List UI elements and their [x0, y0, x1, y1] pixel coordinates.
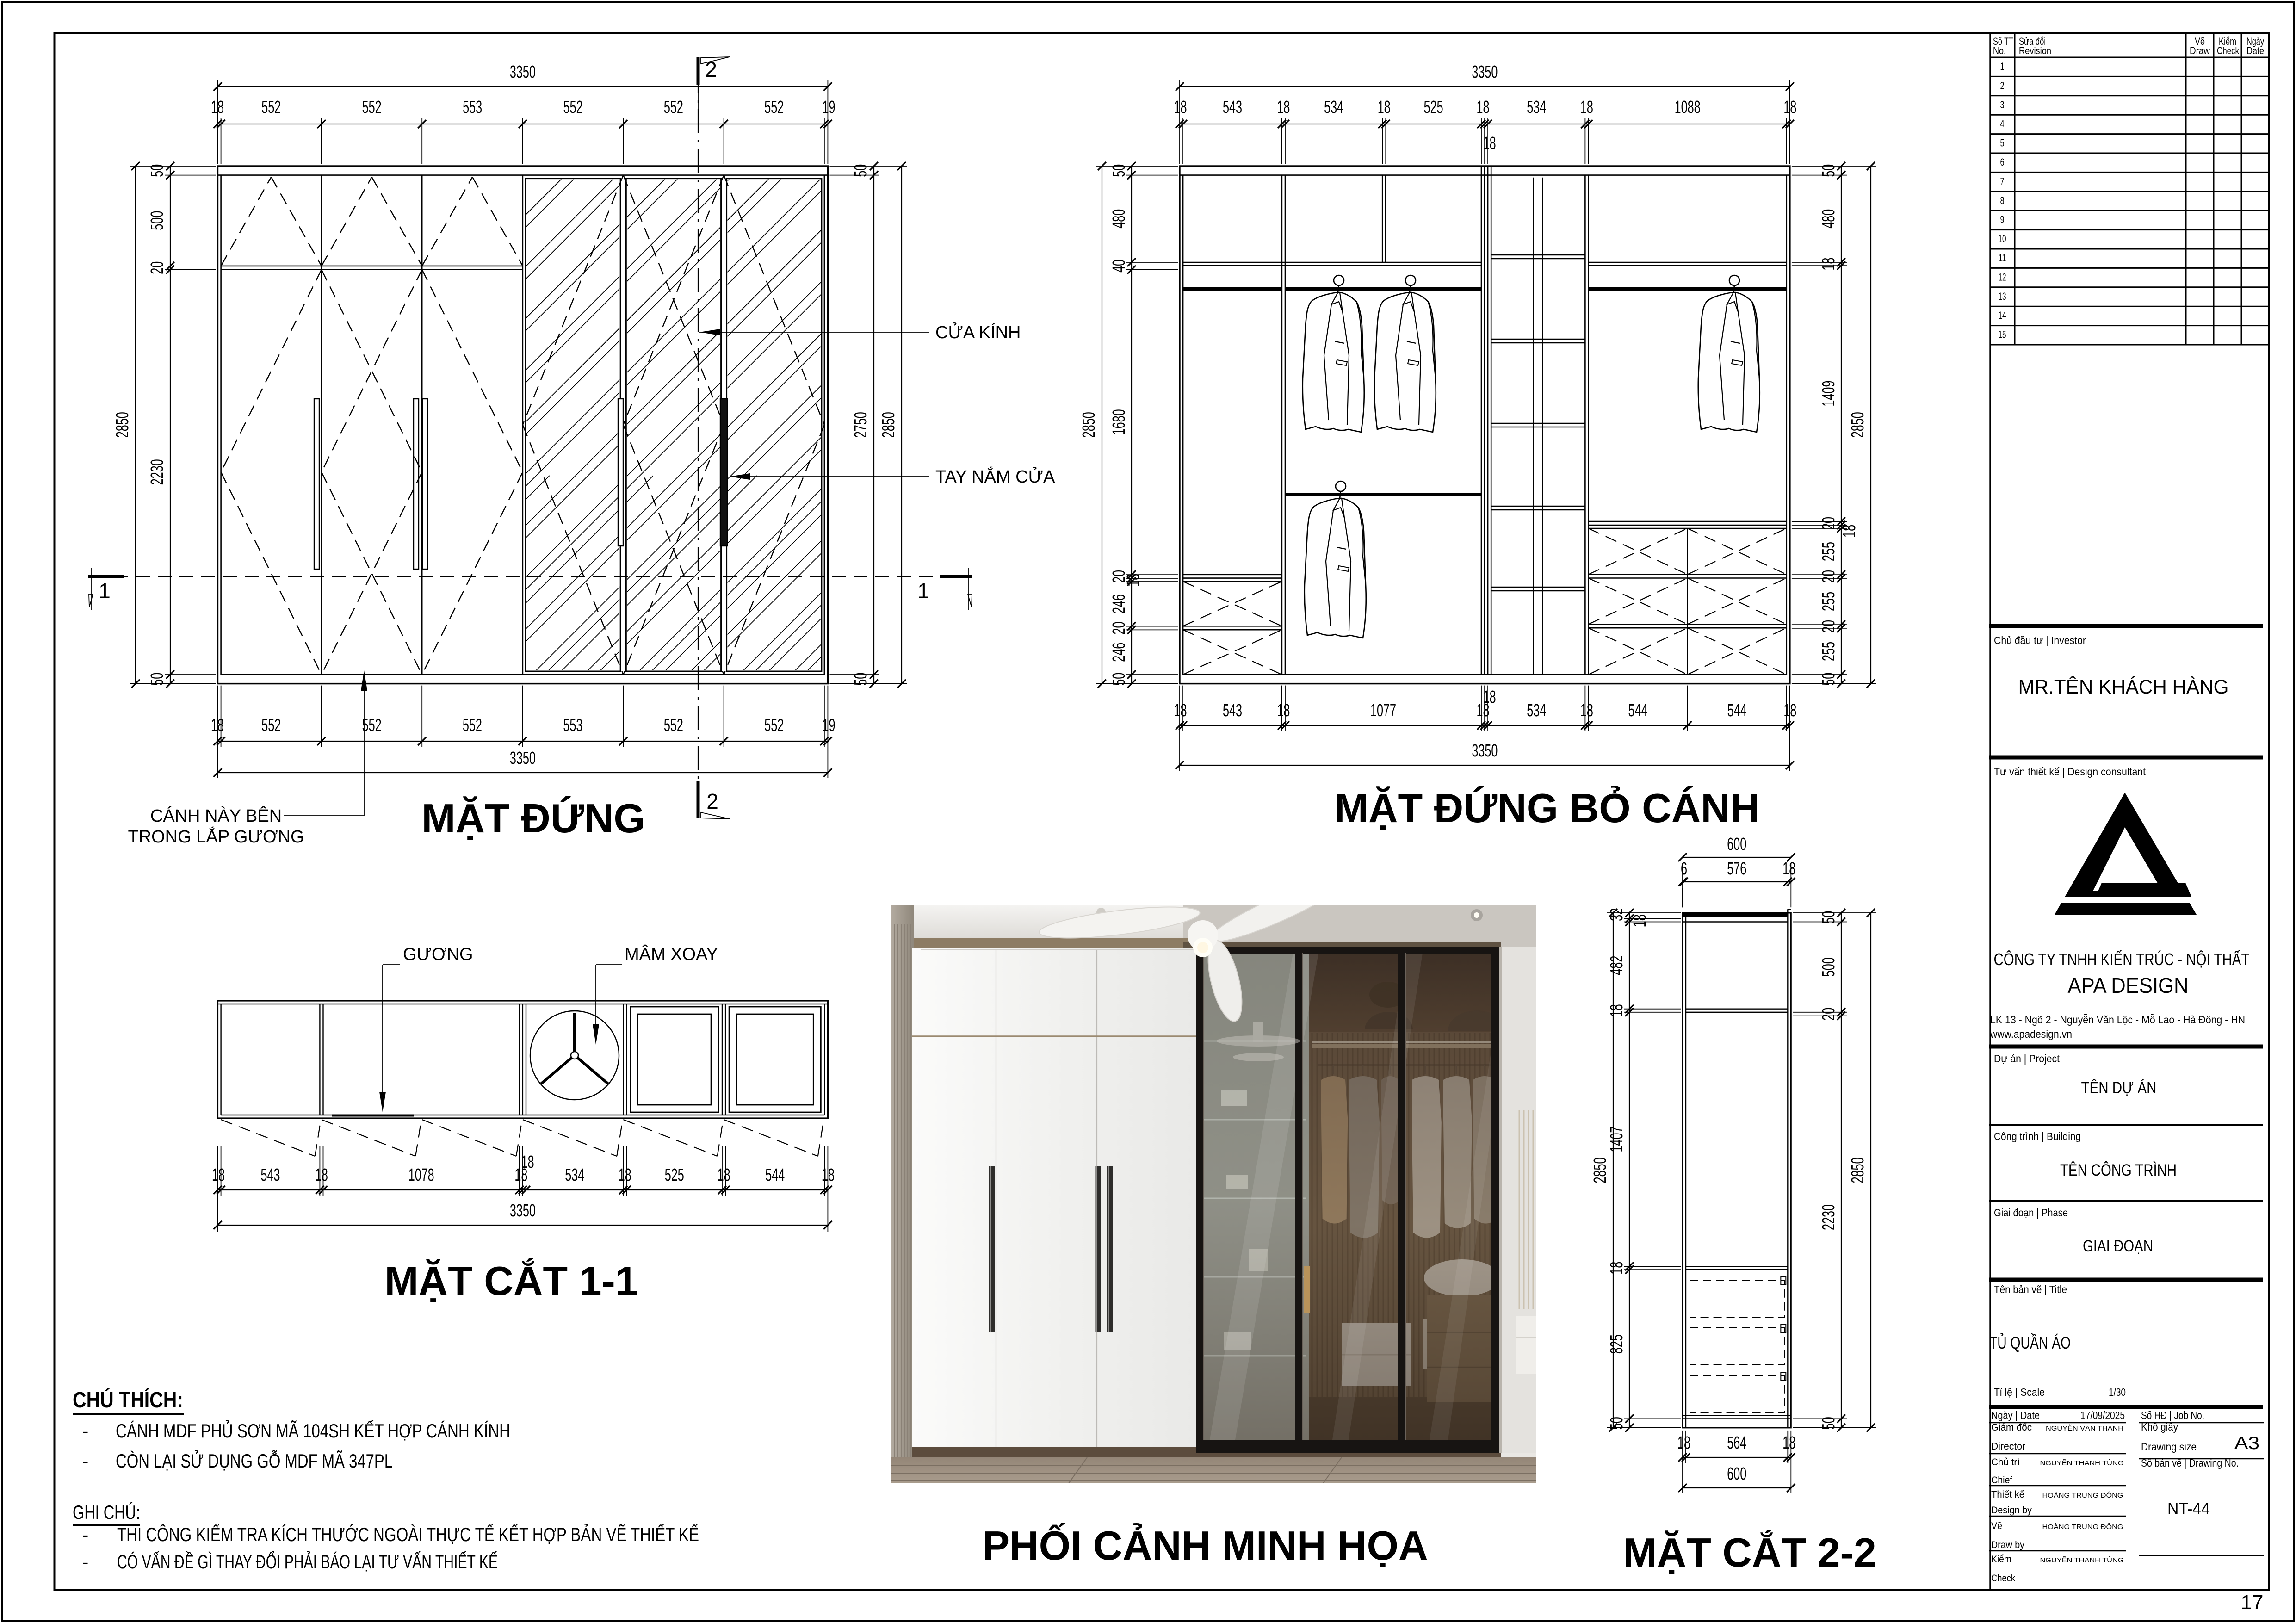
svg-text:552: 552: [261, 716, 281, 735]
svg-text:246: 246: [1109, 643, 1129, 662]
svg-text:18: 18: [1782, 1433, 1795, 1453]
svg-text:18: 18: [211, 98, 224, 117]
svg-text:1: 1: [2000, 61, 2005, 72]
svg-text:CÒN LẠI SỬ DỤNG GỖ MDF MÃ 347P: CÒN LẠI SỬ DỤNG GỖ MDF MÃ 347PL: [116, 1450, 393, 1472]
svg-text:2: 2: [706, 789, 718, 813]
svg-text:255: 255: [1819, 592, 1838, 611]
svg-text:500: 500: [148, 211, 167, 230]
svg-text:Date: Date: [2246, 45, 2264, 56]
svg-text:2750: 2750: [851, 412, 871, 438]
svg-text:6: 6: [1681, 859, 1687, 879]
svg-text:576: 576: [1727, 859, 1746, 879]
svg-text:50: 50: [148, 164, 167, 177]
svg-text:18: 18: [1819, 258, 1838, 271]
svg-text:MẶT CẮT 1-1: MẶT CẮT 1-1: [384, 1258, 638, 1304]
svg-text:1078: 1078: [408, 1165, 434, 1185]
svg-text:18: 18: [1124, 574, 1143, 587]
svg-text:3350: 3350: [510, 749, 536, 768]
svg-text:50: 50: [1109, 673, 1129, 686]
svg-text:18: 18: [1378, 98, 1391, 117]
svg-text:HOÀNG TRUNG ĐÔNG: HOÀNG TRUNG ĐÔNG: [2042, 1492, 2123, 1499]
svg-text:18: 18: [1783, 701, 1796, 720]
svg-text:2850: 2850: [1848, 412, 1868, 438]
svg-text:CỬA KÍNH: CỬA KÍNH: [935, 322, 1021, 342]
svg-text:2850: 2850: [1079, 412, 1099, 438]
svg-text:Design by: Design by: [1991, 1505, 2032, 1516]
svg-text:CÔNG TY TNHH KIẾN TRÚC - NỘI T: CÔNG TY TNHH KIẾN TRÚC - NỘI THẤT: [1994, 950, 2250, 969]
svg-text:2: 2: [2000, 80, 2005, 91]
svg-text:A3: A3: [2234, 1433, 2259, 1453]
svg-text:18: 18: [1483, 688, 1496, 707]
svg-text:18: 18: [315, 1165, 328, 1185]
svg-text:18: 18: [1607, 1004, 1627, 1017]
svg-text:543: 543: [1223, 98, 1242, 117]
svg-text:CHÚ THÍCH:: CHÚ THÍCH:: [73, 1387, 183, 1412]
svg-text:552: 552: [362, 98, 382, 117]
svg-text:2230: 2230: [1819, 1204, 1838, 1230]
svg-text:8: 8: [2000, 195, 2005, 206]
svg-text:20: 20: [1109, 622, 1129, 635]
svg-text:18: 18: [1174, 98, 1187, 117]
svg-text:PHỐI CẢNH MINH HỌA: PHỐI CẢNH MINH HỌA: [982, 1523, 1428, 1568]
svg-text:534: 534: [1324, 98, 1343, 117]
svg-text:Ngày | Date: Ngày | Date: [1991, 1409, 2040, 1421]
svg-text:www.apadesign.vn: www.apadesign.vn: [1990, 1028, 2072, 1040]
svg-text:482: 482: [1607, 956, 1627, 975]
svg-text:1: 1: [917, 579, 929, 603]
svg-text:553: 553: [463, 98, 482, 117]
svg-text:825: 825: [1607, 1334, 1627, 1354]
svg-text:534: 534: [565, 1165, 584, 1185]
svg-text:2850: 2850: [879, 412, 898, 438]
svg-text:17/09/2025: 17/09/2025: [2080, 1409, 2125, 1421]
svg-text:50: 50: [851, 164, 871, 177]
svg-text:600: 600: [1727, 1464, 1746, 1484]
svg-text:18: 18: [1477, 98, 1490, 117]
svg-text:9: 9: [2000, 214, 2005, 225]
svg-text:50: 50: [1819, 1417, 1838, 1430]
svg-text:552: 552: [261, 98, 281, 117]
svg-text:GIAI ĐOẠN: GIAI ĐOẠN: [2083, 1237, 2153, 1255]
svg-text:4: 4: [2000, 118, 2005, 130]
svg-text:Revision: Revision: [2019, 45, 2051, 56]
svg-text:18: 18: [211, 716, 224, 735]
svg-text:552: 552: [764, 716, 784, 735]
svg-text:50: 50: [851, 673, 871, 686]
svg-text:-: -: [82, 1451, 88, 1472]
svg-text:Giai đoạn | Phase: Giai đoạn | Phase: [1994, 1207, 2068, 1219]
svg-text:255: 255: [1819, 542, 1838, 561]
svg-text:534: 534: [1527, 701, 1546, 720]
svg-text:1: 1: [99, 579, 111, 603]
svg-text:18: 18: [1607, 1262, 1627, 1275]
svg-text:Giám đốc: Giám đốc: [1991, 1422, 2032, 1433]
svg-text:552: 552: [563, 98, 583, 117]
svg-text:543: 543: [1223, 701, 1242, 720]
svg-text:Dự án | Project: Dự án | Project: [1994, 1053, 2060, 1065]
svg-text:Kiểm: Kiểm: [1991, 1554, 2011, 1565]
svg-text:544: 544: [765, 1165, 785, 1185]
svg-text:Check: Check: [1991, 1573, 2015, 1584]
svg-text:2850: 2850: [1848, 1158, 1868, 1183]
svg-text:20: 20: [1819, 517, 1838, 530]
svg-text:GHI CHÚ:: GHI CHÚ:: [73, 1501, 140, 1523]
svg-text:18: 18: [1783, 98, 1796, 117]
svg-text:552: 552: [664, 716, 683, 735]
svg-text:525: 525: [1424, 98, 1443, 117]
svg-text:18: 18: [1840, 525, 1859, 538]
svg-text:564: 564: [1727, 1433, 1746, 1453]
svg-text:Công trình | Building: Công trình | Building: [1994, 1130, 2081, 1142]
svg-text:3: 3: [2000, 99, 2005, 111]
svg-text:Draw by: Draw by: [1991, 1540, 2024, 1550]
svg-text:Chief: Chief: [1991, 1475, 2012, 1486]
svg-text:12: 12: [1999, 271, 2006, 283]
svg-text:MẶT CẮT 2-2: MẶT CẮT 2-2: [1623, 1530, 1876, 1575]
svg-text:18: 18: [1580, 98, 1593, 117]
svg-text:NT-44: NT-44: [2167, 1499, 2210, 1518]
svg-text:Thiết kế: Thiết kế: [1991, 1489, 2024, 1500]
svg-text:50: 50: [1819, 911, 1838, 924]
svg-text:18: 18: [1277, 98, 1290, 117]
svg-text:18: 18: [1580, 701, 1593, 720]
svg-text:1409: 1409: [1819, 381, 1838, 407]
svg-text:11: 11: [1999, 252, 2006, 264]
svg-text:THI CÔNG KIỂM TRA KÍCH THƯỚC N: THI CÔNG KIỂM TRA KÍCH THƯỚC NGOÀI THỰC …: [117, 1523, 699, 1545]
svg-text:Drawing size: Drawing size: [2141, 1441, 2197, 1453]
svg-text:17: 17: [2241, 1591, 2264, 1614]
svg-text:-: -: [82, 1552, 88, 1573]
svg-text:20: 20: [1819, 620, 1838, 633]
svg-text:1077: 1077: [1370, 701, 1396, 720]
svg-text:50: 50: [1819, 673, 1838, 686]
svg-text:TÊN DỰ ÁN: TÊN DỰ ÁN: [2081, 1079, 2157, 1097]
svg-text:APA DESIGN: APA DESIGN: [2068, 973, 2189, 997]
svg-text:NGUYỄN THANH TÙNG: NGUYỄN THANH TÙNG: [2040, 1556, 2124, 1564]
svg-text:20: 20: [1819, 1008, 1838, 1021]
svg-text:-: -: [82, 1421, 88, 1442]
svg-text:40: 40: [1109, 260, 1129, 273]
svg-text:6: 6: [2000, 156, 2005, 168]
svg-text:1088: 1088: [1675, 98, 1701, 117]
svg-text:50: 50: [148, 673, 167, 686]
svg-text:246: 246: [1109, 594, 1129, 613]
svg-text:2850: 2850: [113, 412, 132, 438]
svg-text:LK 13 - Ngõ 2 - Nguyễn Văn Lộc: LK 13 - Ngõ 2 - Nguyễn Văn Lộc - Mỗ Lao …: [1990, 1014, 2245, 1026]
svg-text:1/30: 1/30: [2109, 1386, 2126, 1398]
svg-text:3350: 3350: [510, 62, 536, 82]
svg-text:20: 20: [1819, 570, 1838, 583]
svg-text:552: 552: [463, 716, 482, 735]
svg-text:19: 19: [823, 716, 835, 735]
svg-text:15: 15: [1999, 329, 2006, 341]
svg-text:18: 18: [212, 1165, 225, 1185]
svg-text:Tỉ lệ | Scale: Tỉ lệ | Scale: [1994, 1386, 2045, 1398]
svg-text:Check: Check: [2217, 45, 2240, 56]
svg-text:HOÀNG TRUNG ĐÔNG: HOÀNG TRUNG ĐÔNG: [2042, 1523, 2123, 1531]
svg-text:3350: 3350: [510, 1201, 536, 1220]
svg-text:525: 525: [665, 1165, 684, 1185]
svg-text:500: 500: [1819, 957, 1838, 977]
svg-text:18: 18: [1630, 914, 1650, 927]
svg-text:MR.TÊN KHÁCH HÀNG: MR.TÊN KHÁCH HÀNG: [2018, 676, 2229, 698]
svg-text:600: 600: [1727, 835, 1746, 854]
svg-text:13: 13: [1999, 291, 2006, 302]
svg-text:CÁNH MDF PHỦ SƠN MÃ 104SH KẾT: CÁNH MDF PHỦ SƠN MÃ 104SH KẾT HỢP CÁNH K…: [116, 1419, 510, 1442]
svg-text:Vẽ: Vẽ: [1991, 1521, 2002, 1531]
svg-text:553: 553: [563, 716, 582, 735]
svg-text:Draw: Draw: [2190, 45, 2210, 56]
svg-text:No.: No.: [1993, 45, 2006, 56]
svg-text:CÓ VẤN ĐỀ GÌ THAY ĐỔI PHẢI BÁO: CÓ VẤN ĐỀ GÌ THAY ĐỔI PHẢI BÁO LẠI TƯ VẤ…: [117, 1550, 498, 1573]
svg-text:50: 50: [1109, 164, 1129, 177]
svg-text:Số HĐ | Job No.: Số HĐ | Job No.: [2141, 1409, 2204, 1421]
svg-text:480: 480: [1819, 209, 1838, 229]
svg-text:Số bản vẽ | Drawing No.: Số bản vẽ | Drawing No.: [2141, 1457, 2239, 1469]
svg-text:552: 552: [664, 98, 683, 117]
svg-text:3350: 3350: [1472, 62, 1498, 82]
svg-text:TÊN CÔNG TRÌNH: TÊN CÔNG TRÌNH: [2060, 1161, 2177, 1179]
svg-text:1680: 1680: [1109, 409, 1129, 435]
svg-text:7: 7: [2000, 175, 2005, 187]
svg-text:NGUYỄN THANH TÙNG: NGUYỄN THANH TÙNG: [2040, 1459, 2124, 1467]
svg-text:18: 18: [619, 1165, 631, 1185]
svg-text:18: 18: [1174, 701, 1187, 720]
svg-text:GƯƠNG: GƯƠNG: [403, 945, 473, 964]
svg-text:-: -: [82, 1525, 88, 1545]
svg-text:Tên bản vẽ | Title: Tên bản vẽ | Title: [1994, 1283, 2067, 1295]
svg-text:3350: 3350: [1472, 741, 1498, 761]
svg-text:NGUYỄN VĂN THÀNH: NGUYỄN VĂN THÀNH: [2046, 1425, 2123, 1432]
svg-text:Chủ đầu tư | Investor: Chủ đầu tư | Investor: [1994, 634, 2086, 646]
svg-text:MÂM XOAY: MÂM XOAY: [625, 944, 718, 964]
svg-text:50: 50: [1819, 164, 1838, 177]
svg-text:18: 18: [521, 1152, 534, 1172]
svg-text:544: 544: [1727, 701, 1747, 720]
svg-text:Chủ trì: Chủ trì: [1991, 1457, 2020, 1468]
svg-text:2850: 2850: [1590, 1158, 1610, 1183]
svg-text:543: 543: [261, 1165, 280, 1185]
svg-text:20: 20: [148, 261, 167, 274]
svg-text:534: 534: [1527, 98, 1546, 117]
svg-text:255: 255: [1819, 642, 1838, 661]
svg-text:TRONG LẮP GƯƠNG: TRONG LẮP GƯƠNG: [128, 826, 304, 847]
svg-text:480: 480: [1109, 209, 1129, 229]
svg-text:TAY NẮM CỬA: TAY NẮM CỬA: [935, 466, 1055, 487]
svg-text:MẶT ĐỨNG BỎ CÁNH: MẶT ĐỨNG BỎ CÁNH: [1335, 785, 1760, 831]
svg-text:18: 18: [1782, 859, 1795, 879]
svg-text:10: 10: [1999, 233, 2006, 245]
svg-text:552: 552: [362, 716, 382, 735]
svg-text:19: 19: [823, 98, 835, 117]
svg-text:Director: Director: [1991, 1441, 2025, 1452]
svg-text:MẶT ĐỨNG: MẶT ĐỨNG: [421, 795, 645, 841]
svg-text:18: 18: [718, 1165, 730, 1185]
svg-text:1407: 1407: [1607, 1127, 1627, 1152]
svg-text:Khổ giấy: Khổ giấy: [2141, 1421, 2178, 1433]
svg-text:Tư vấn thiết kế | Design consu: Tư vấn thiết kế | Design consultant: [1994, 766, 2146, 778]
svg-text:552: 552: [764, 98, 784, 117]
svg-text:5: 5: [2000, 137, 2005, 149]
svg-text:18: 18: [1677, 1433, 1690, 1453]
svg-text:18: 18: [1277, 701, 1290, 720]
svg-text:544: 544: [1628, 701, 1648, 720]
svg-text:18: 18: [822, 1165, 835, 1185]
svg-text:CÁNH NÀY BÊN: CÁNH NÀY BÊN: [150, 806, 282, 826]
svg-text:18: 18: [1483, 134, 1496, 153]
svg-text:TỦ QUẦN ÁO: TỦ QUẦN ÁO: [1989, 1333, 2071, 1352]
svg-text:2230: 2230: [148, 459, 167, 485]
svg-text:14: 14: [1999, 310, 2006, 321]
